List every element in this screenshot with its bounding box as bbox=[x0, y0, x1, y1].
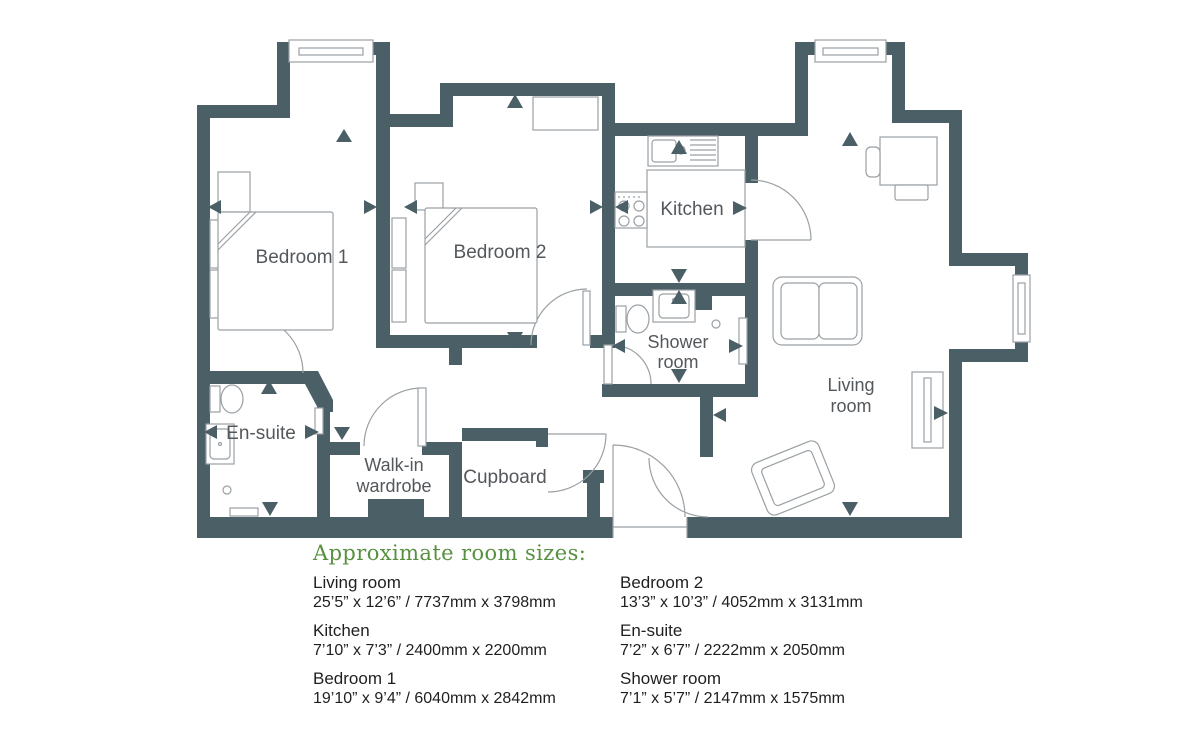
size-item-living-room: Living room 25’5” x 12’6” / 7737mm x 379… bbox=[313, 572, 613, 613]
shower-toilet-tank bbox=[616, 306, 626, 332]
size-item-kitchen: Kitchen 7’10” x 7’3” / 2400mm x 2200mm bbox=[313, 620, 613, 661]
window-bedroom1-bay bbox=[289, 40, 373, 62]
door-leaf-bedroom2 bbox=[583, 291, 590, 345]
ensuite-toilet-tank bbox=[210, 386, 220, 412]
size-item-dims: 7’2” x 6’7” / 2222mm x 2050mm bbox=[620, 641, 920, 661]
floor-plan: Bedroom 1 Bedroom 2 Kitchen Shower room … bbox=[0, 0, 1200, 556]
room-sizes-column-left: Living room 25’5” x 12’6” / 7737mm x 379… bbox=[313, 572, 613, 716]
size-item-ensuite: En-suite 7’2” x 6’7” / 2222mm x 2050mm bbox=[620, 620, 920, 661]
floorplan-page: Bedroom 1 Bedroom 2 Kitchen Shower room … bbox=[0, 0, 1200, 742]
size-item-name: En-suite bbox=[620, 620, 920, 641]
size-item-shower-room: Shower room 7’1” x 5’7” / 2147mm x 1575m… bbox=[620, 668, 920, 709]
shower-screen bbox=[739, 318, 747, 364]
door-leaf-walkin bbox=[418, 388, 426, 446]
size-item-name: Bedroom 1 bbox=[313, 668, 613, 689]
size-item-name: Bedroom 2 bbox=[620, 572, 920, 593]
size-item-dims: 19’10” x 9’4” / 6040mm x 2842mm bbox=[313, 689, 613, 709]
size-item-name: Kitchen bbox=[313, 620, 613, 641]
furniture-living-room bbox=[749, 137, 943, 517]
room-label-kitchen: Kitchen bbox=[660, 199, 723, 220]
size-item-bedroom-1: Bedroom 1 19’10” x 9’4” / 6040mm x 2842m… bbox=[313, 668, 613, 709]
room-sizes-heading: Approximate room sizes: bbox=[313, 541, 913, 565]
furniture-ensuite bbox=[206, 385, 258, 516]
size-item-name: Shower room bbox=[620, 668, 920, 689]
armchair bbox=[749, 439, 837, 518]
chest-bedroom2 bbox=[533, 97, 598, 130]
room-label-walkin-line1: Walk-in bbox=[364, 455, 423, 475]
room-label-cupboard: Cupboard bbox=[463, 467, 546, 488]
room-label-living-line1: Living bbox=[827, 375, 874, 395]
ensuite-toilet-bowl bbox=[221, 385, 243, 413]
room-label-bedroom-2: Bedroom 2 bbox=[454, 242, 547, 263]
room-label-ensuite: En-suite bbox=[226, 423, 296, 444]
size-item-name: Living room bbox=[313, 572, 613, 593]
door-leaf-shower bbox=[604, 345, 612, 384]
furniture-bedroom2 bbox=[392, 97, 598, 323]
door-leaf-ensuite bbox=[315, 408, 323, 434]
room-label-shower-line1: Shower bbox=[647, 332, 708, 352]
size-item-dims: 7’10” x 7’3” / 2400mm x 2200mm bbox=[313, 641, 613, 661]
size-item-dims: 25’5” x 12’6” / 7737mm x 3798mm bbox=[313, 593, 613, 613]
room-sizes-section: Approximate room sizes: Living room 25’5… bbox=[313, 541, 913, 574]
room-label-living-line2: room bbox=[830, 396, 871, 416]
window-living-top bbox=[815, 40, 886, 62]
window-living-right bbox=[1013, 275, 1030, 342]
room-sizes-column-right: Bedroom 2 13’3” x 10’3” / 4052mm x 3131m… bbox=[620, 572, 920, 716]
shower-toilet-bowl bbox=[627, 305, 649, 333]
room-label-bedroom-1: Bedroom 1 bbox=[256, 247, 349, 268]
room-label-shower-line2: room bbox=[657, 352, 698, 372]
furniture bbox=[206, 97, 943, 517]
ensuite-shower-tray bbox=[230, 508, 258, 516]
desk-chair bbox=[866, 147, 880, 177]
size-item-dims: 7’1” x 5’7” / 2147mm x 1575mm bbox=[620, 689, 920, 709]
size-item-dims: 13’3” x 10’3” / 4052mm x 3131mm bbox=[620, 593, 920, 613]
desk bbox=[880, 137, 937, 185]
room-label-walkin-line2: wardrobe bbox=[355, 476, 431, 496]
size-item-bedroom-2: Bedroom 2 13’3” x 10’3” / 4052mm x 3131m… bbox=[620, 572, 920, 613]
